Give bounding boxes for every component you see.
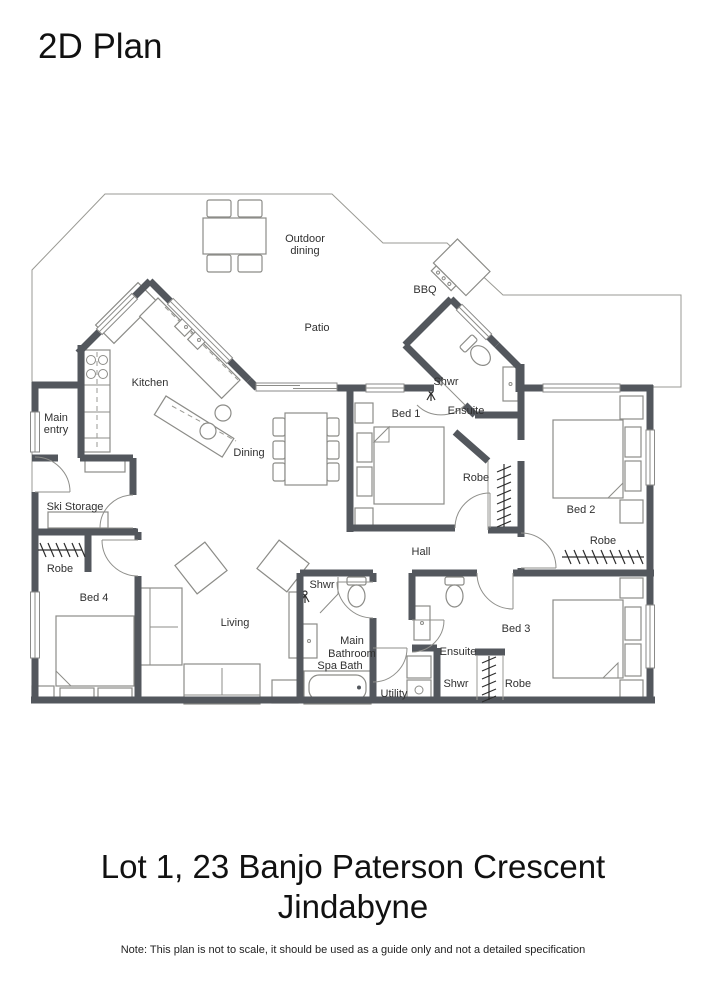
window (646, 430, 655, 485)
label-robe-hall: Robe (463, 472, 489, 484)
bed4-furniture (32, 616, 134, 702)
robe-rail-bed4 (38, 543, 85, 557)
window (31, 592, 40, 658)
label-bed2: Bed 2 (567, 504, 596, 516)
window (543, 384, 620, 392)
label-spa-bath: Spa Bath (317, 660, 362, 672)
label-outdoor-dining-1: Outdoor (285, 233, 325, 245)
label-robe-bed4: Robe (47, 563, 73, 575)
label-utility: Utility (381, 688, 408, 700)
bed4-door (102, 540, 138, 576)
label-outdoor-dining-2: dining (290, 245, 319, 257)
label-shwr-bath: Shwr (309, 579, 334, 591)
label-kitchen: Kitchen (132, 377, 169, 389)
label-ensuite2: Ensuite (440, 646, 477, 658)
label-robe-bed2: Robe (590, 535, 616, 547)
label-main-entry-2: entry (44, 424, 69, 436)
label-main-bathroom-2: Bathroom (328, 648, 376, 660)
robe-rail-hall (488, 461, 511, 530)
label-bed1: Bed 1 (392, 408, 421, 420)
furniture (32, 200, 643, 704)
bed1-furniture (355, 403, 444, 528)
label-ski-storage: Ski Storage (47, 501, 104, 513)
dining-table (273, 413, 339, 485)
label-main-entry-1: Main (44, 412, 68, 424)
address-line1: Lot 1, 23 Banjo Paterson Crescent (101, 848, 605, 885)
label-bed3: Bed 3 (502, 623, 531, 635)
label-main-bathroom-1: Main (340, 635, 364, 647)
label-robe-bed3: Robe (505, 678, 531, 690)
sliding-door (256, 383, 337, 391)
address-block: Lot 1, 23 Banjo Paterson Crescent Jindab… (101, 848, 605, 956)
page-title: 2D Plan (38, 27, 163, 66)
utility-door (373, 648, 407, 682)
label-dining: Dining (233, 447, 264, 459)
bbq-unit (428, 239, 490, 301)
robe-rail-bed3 (477, 655, 503, 702)
bed2-door (521, 533, 556, 568)
label-patio: Patio (304, 322, 329, 334)
window (646, 605, 655, 668)
label-living: Living (221, 617, 250, 629)
label-hall: Hall (412, 546, 431, 558)
floor-plan: 2D Plan (0, 0, 707, 1000)
label-ensuite1: Ensuite (448, 405, 485, 417)
robe-rail-bed2 (562, 550, 644, 564)
bed3-door (477, 573, 513, 609)
address-line2: Jindabyne (278, 888, 428, 925)
bed1-door (455, 493, 490, 528)
label-bbq: BBQ (413, 284, 437, 296)
window (31, 412, 40, 452)
bed3-furniture (553, 578, 643, 700)
label-shwr-ensuite1: Shwr (433, 376, 458, 388)
main-entry-door (35, 457, 70, 492)
outdoor-dining-set (203, 200, 266, 272)
floor-plan-page: 2D Plan (0, 0, 707, 1000)
window (366, 384, 404, 392)
disclaimer-note: Note: This plan is not to scale, it shou… (121, 944, 586, 956)
label-bed4: Bed 4 (80, 592, 109, 604)
label-shwr-ensuite2: Shwr (443, 678, 468, 690)
window (456, 304, 491, 339)
ski-storage-bench (48, 512, 108, 528)
